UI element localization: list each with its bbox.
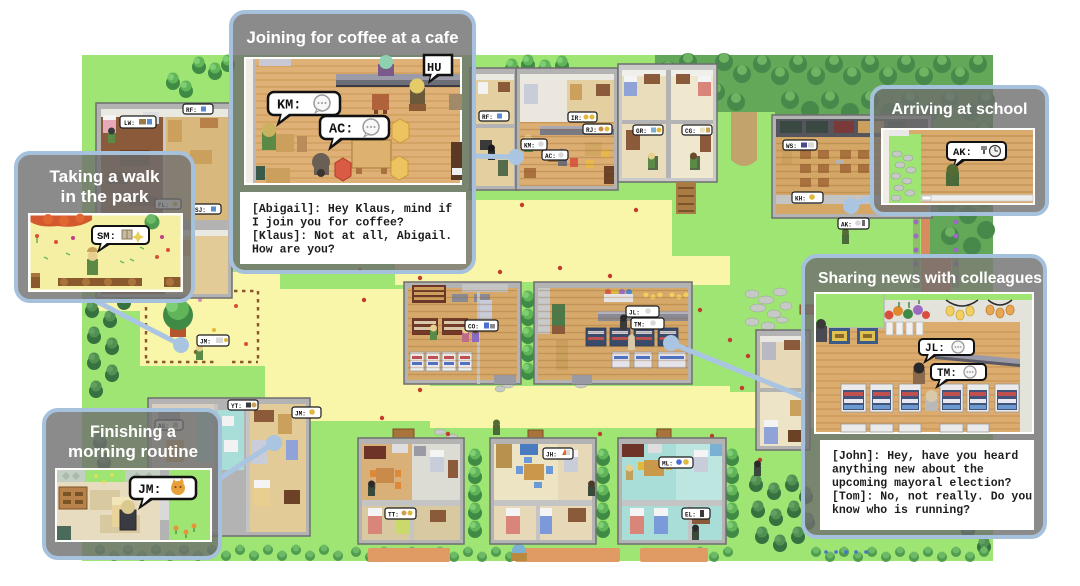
svg-text:RJ:: RJ: xyxy=(586,127,597,134)
svg-text:in the park: in the park xyxy=(61,187,150,206)
svg-text:TT:: TT: xyxy=(388,512,399,519)
svg-text:morning routine: morning routine xyxy=(68,442,198,461)
svg-text:[Tom]: No, not really. Do you: [Tom]: No, not really. Do you xyxy=(832,491,1032,504)
svg-text:Taking a walk: Taking a walk xyxy=(50,167,161,186)
svg-text:AK:: AK: xyxy=(953,147,972,159)
svg-text:JL:: JL: xyxy=(925,343,945,355)
svg-text:know who is running?: know who is running? xyxy=(832,504,970,517)
svg-text:KM:: KM: xyxy=(277,99,301,114)
svg-text:AC:: AC: xyxy=(329,123,353,138)
svg-text:Finishing a: Finishing a xyxy=(90,422,177,441)
svg-text:LW:: LW: xyxy=(124,120,135,127)
svg-text:TM:: TM: xyxy=(634,322,645,329)
svg-text:CG:: CG: xyxy=(685,128,696,135)
svg-text:upcoming mayoral election?: upcoming mayoral election? xyxy=(832,477,1012,490)
svg-text:RF:: RF: xyxy=(482,114,493,121)
svg-text:AC:: AC: xyxy=(545,153,556,160)
svg-text:Joining for coffee at a cafe: Joining for coffee at a cafe xyxy=(247,29,459,47)
svg-text:JL:: JL: xyxy=(629,310,640,317)
svg-text:KH:: KH: xyxy=(795,196,806,203)
svg-text:EL:: EL: xyxy=(685,512,696,519)
svg-text:KM:: KM: xyxy=(524,143,535,150)
svg-text:SJ:: SJ: xyxy=(195,207,206,214)
svg-text:JM:: JM: xyxy=(200,339,211,346)
svg-text:SM:: SM: xyxy=(97,231,116,243)
svg-text:[Klaus]: Not at all, Abigail.: [Klaus]: Not at all, Abigail. xyxy=(252,230,452,243)
svg-text:Sharing news with colleagues: Sharing news with colleagues xyxy=(818,270,1042,287)
svg-text:I join you for coffee?: I join you for coffee? xyxy=(252,217,404,230)
svg-text:JM:: JM: xyxy=(295,411,306,418)
svg-text:[Abigail]: Hey Klaus, mind if: [Abigail]: Hey Klaus, mind if xyxy=(252,203,452,216)
svg-text:anything new about the: anything new about the xyxy=(832,464,984,477)
svg-text:AK:: AK: xyxy=(841,222,852,229)
svg-text:WS:: WS: xyxy=(786,143,797,150)
svg-text:GR:: GR: xyxy=(636,128,647,135)
svg-text:RF:: RF: xyxy=(186,107,197,114)
svg-text:Arriving at school: Arriving at school xyxy=(892,101,1028,118)
svg-text:[John]: Hey, have you heard: [John]: Hey, have you heard xyxy=(832,450,1018,463)
svg-text:IR:: IR: xyxy=(571,115,582,122)
svg-text:CO:: CO: xyxy=(468,324,479,331)
svg-text:How are you?: How are you? xyxy=(252,244,335,257)
svg-text:HU: HU xyxy=(427,61,441,75)
svg-text:ML:: ML: xyxy=(662,461,673,468)
svg-text:YT:: YT: xyxy=(231,403,242,410)
svg-text:JM:: JM: xyxy=(138,482,161,497)
svg-text:JH:: JH: xyxy=(546,452,557,459)
svg-text:TM:: TM: xyxy=(937,368,957,380)
